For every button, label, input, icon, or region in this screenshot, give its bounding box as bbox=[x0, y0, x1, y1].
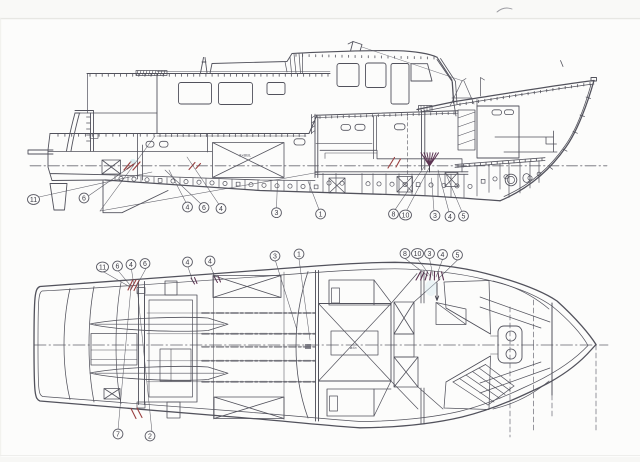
svg-text:4: 4 bbox=[186, 204, 190, 211]
svg-text:6: 6 bbox=[202, 205, 206, 212]
svg-text:1: 1 bbox=[297, 251, 301, 258]
svg-text:ø4×: ø4× bbox=[350, 345, 358, 350]
svg-text:4: 4 bbox=[448, 214, 452, 221]
svg-text:3×BBL: 3×BBL bbox=[239, 153, 252, 158]
svg-text:3: 3 bbox=[428, 251, 432, 258]
svg-text:10: 10 bbox=[402, 212, 410, 219]
svg-text:7: 7 bbox=[116, 431, 120, 438]
svg-text:1: 1 bbox=[319, 211, 323, 218]
svg-text:3: 3 bbox=[275, 210, 279, 217]
svg-text:4: 4 bbox=[208, 258, 212, 265]
svg-text:2: 2 bbox=[148, 433, 152, 440]
svg-text:4: 4 bbox=[219, 206, 223, 213]
svg-text:10: 10 bbox=[414, 251, 422, 258]
svg-text:6: 6 bbox=[82, 195, 86, 202]
svg-text:3: 3 bbox=[273, 253, 277, 260]
svg-text:11: 11 bbox=[30, 197, 37, 204]
svg-text:6: 6 bbox=[116, 263, 120, 270]
svg-text:3: 3 bbox=[433, 213, 437, 220]
svg-text:6: 6 bbox=[143, 261, 147, 268]
svg-text:5: 5 bbox=[462, 213, 466, 220]
svg-text:4: 4 bbox=[441, 252, 445, 259]
svg-text:8: 8 bbox=[403, 251, 407, 258]
svg-text:8: 8 bbox=[392, 211, 396, 218]
svg-text:4: 4 bbox=[186, 259, 190, 266]
svg-text:11: 11 bbox=[99, 264, 106, 271]
svg-text:5: 5 bbox=[456, 252, 460, 259]
svg-text:4: 4 bbox=[129, 262, 133, 269]
